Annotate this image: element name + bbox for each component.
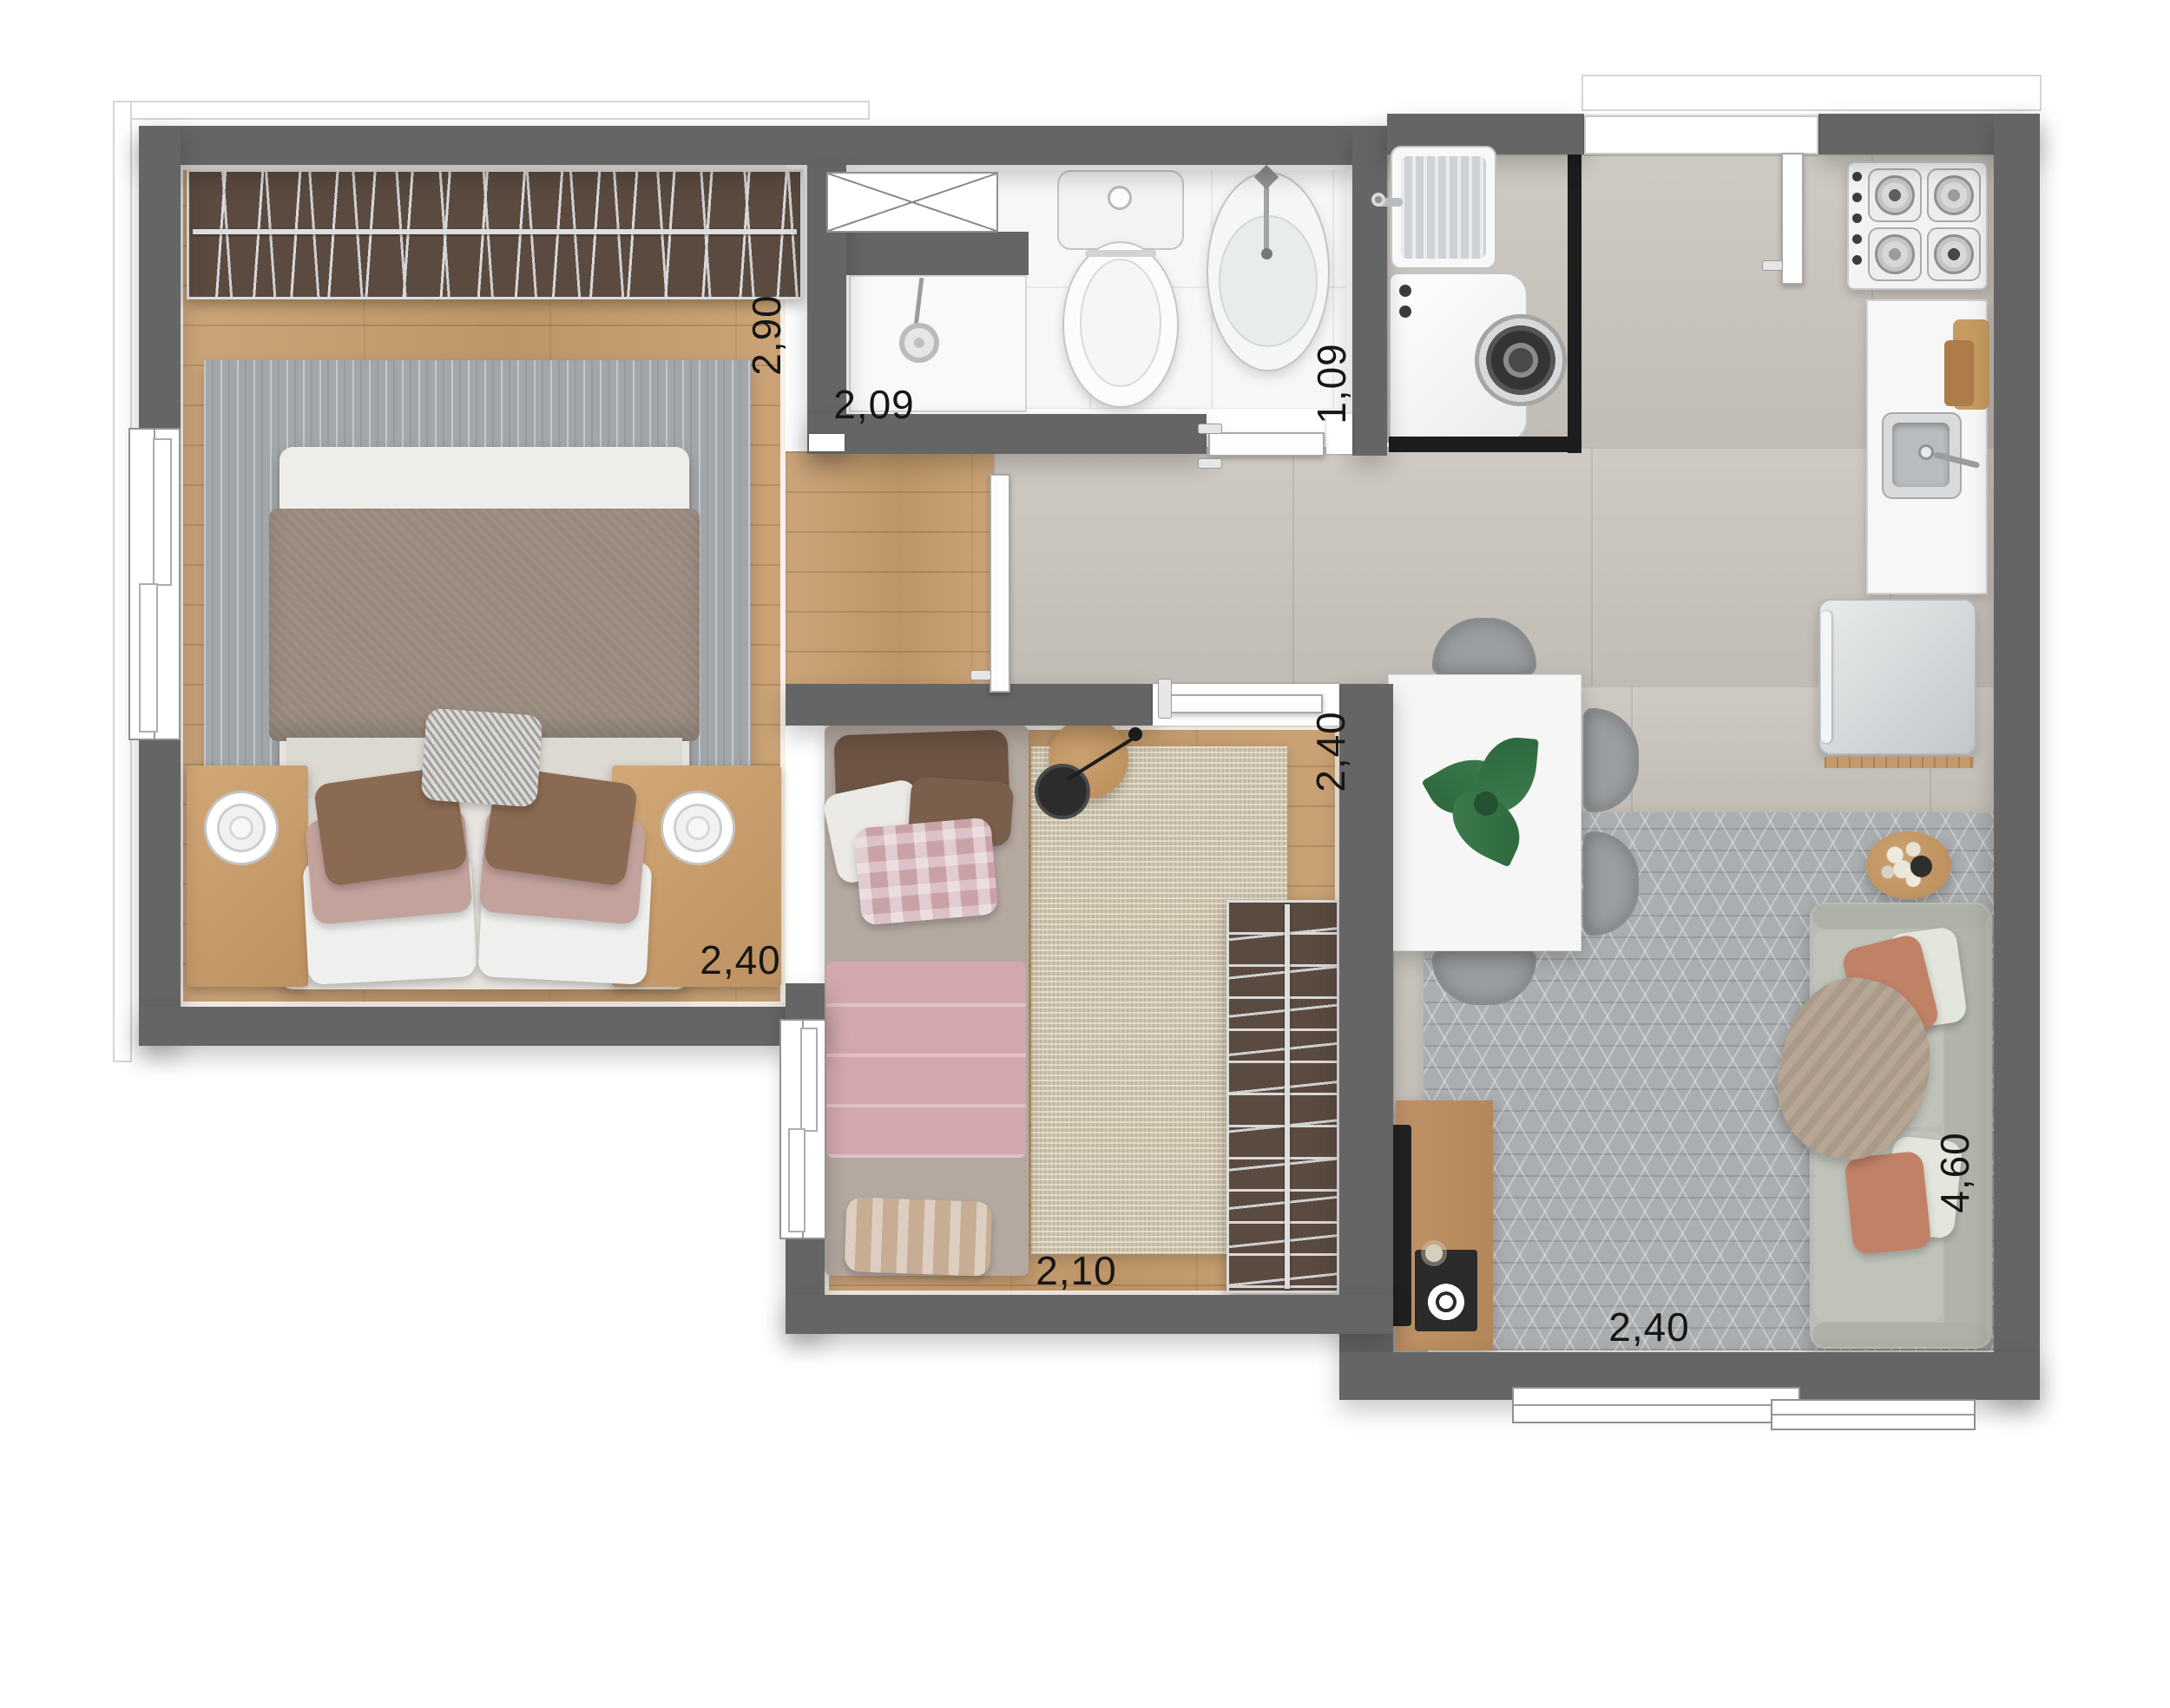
entrance-door-handle-icon — [1762, 260, 1783, 271]
laundry-divider-bottom — [1389, 437, 1581, 452]
double-bed-blanket — [269, 509, 700, 741]
bedroom1-wardrobe — [187, 169, 803, 299]
toilet-flush-button — [1108, 186, 1132, 210]
burner-1-icon — [1875, 175, 1915, 215]
cutting-board-2 — [1944, 340, 1974, 406]
pillow-accent-gray — [420, 707, 542, 807]
bedroom2-wardrobe-rod — [1285, 904, 1290, 1289]
sofa-pillow-salmon-2 — [1844, 1151, 1931, 1256]
bedroom1-window-pane-1 — [153, 438, 172, 586]
bedroom1-wardrobe-rod — [193, 229, 797, 234]
dim-bedroom1-width: 2,40 — [693, 939, 788, 981]
bathroom-door-handle-icon-2 — [1198, 458, 1222, 469]
dim-living-width: 2,40 — [1601, 1306, 1697, 1348]
laundry-tank-basin — [1401, 156, 1486, 259]
bedroom1-window-pane-2 — [139, 583, 158, 732]
floor-plan: 2,90 2,40 2,09 1,09 2,40 2,10 2,40 4,60 — [0, 0, 2170, 1708]
single-bed-pillow-bottom — [845, 1197, 993, 1277]
double-bed-sheet-top — [279, 447, 689, 515]
wall-right — [1994, 114, 2040, 1400]
stove-knob-2 — [1852, 193, 1862, 202]
fridge — [1818, 599, 1976, 755]
side-table-flowers-icon — [1873, 835, 1946, 892]
bathroom-door-handle-icon — [1198, 424, 1222, 434]
wall-bedroom2-top — [786, 684, 1153, 726]
plant-pot-icon — [1474, 792, 1498, 816]
hall-wood-floor — [786, 451, 994, 684]
living-window-1 — [1512, 1387, 1800, 1423]
dim-bedroom2-depth: 2,40 — [1310, 704, 1351, 799]
bedroom2-door-handle-icon — [1158, 679, 1172, 719]
kitchen-faucet-icon — [1918, 444, 1934, 460]
toilet-hinge — [1085, 250, 1156, 257]
laundry-faucet-cross — [1371, 193, 1385, 207]
bedroom1-door-handle-icon — [970, 670, 991, 680]
sofa-arm-bottom — [1812, 1323, 1988, 1347]
wall-bedroom1-bottom — [139, 1007, 825, 1046]
wall-bathroom-laundry — [1352, 126, 1387, 456]
stove-knob-5 — [1852, 255, 1862, 265]
washer-knob-1 — [1399, 285, 1411, 297]
toilet-seat-line — [1080, 259, 1161, 387]
wall-top — [139, 126, 1387, 165]
single-bed-pillow-plaid — [853, 817, 998, 925]
stove-knob-4 — [1852, 234, 1862, 244]
console-plant-icon — [1418, 1239, 1450, 1267]
bedroom2-window-pane-2 — [788, 1128, 806, 1232]
toilet-tank — [1057, 170, 1184, 250]
laundry-divider-vertical — [1568, 148, 1581, 453]
stove-knob-1 — [1852, 172, 1862, 181]
bathroom-wall-jamb-left — [809, 434, 845, 451]
bathroom-door — [1208, 432, 1325, 457]
entrance-threshold — [1584, 115, 1818, 154]
dining-table — [1388, 674, 1581, 951]
single-bed-blanket-pink — [826, 962, 1026, 1158]
burner-3-icon — [1875, 234, 1915, 274]
sofa-arm-top — [1812, 904, 1988, 929]
bedroom1-door — [990, 474, 1010, 693]
nightstand-lamp-left-icon — [196, 783, 286, 873]
wall-bedroom2-bottom — [786, 1295, 1393, 1334]
living-window-2 — [1771, 1399, 1976, 1430]
bedroom2-door — [1170, 694, 1323, 713]
dim-bathroom-depth: 1,09 — [1311, 336, 1352, 431]
entry-corridor-ledge — [1581, 75, 2042, 111]
entrance-door — [1781, 153, 1804, 285]
washer-knob-2 — [1399, 305, 1411, 318]
dim-living-depth: 4,60 — [1934, 1125, 1976, 1220]
burner-2-icon — [1934, 175, 1974, 215]
shower-head-icon — [899, 323, 939, 363]
fridge-shelf-strip — [1825, 757, 1974, 768]
nightstand-lamp-right-icon — [653, 783, 743, 873]
bedroom2-lamp-bulb — [1128, 727, 1142, 741]
outer-ledge-top — [113, 101, 870, 120]
burner-4-icon — [1934, 234, 1974, 274]
bedroom2-wardrobe — [1226, 900, 1339, 1293]
stove-knob-3 — [1852, 213, 1862, 223]
bathroom-faucet-stem — [1264, 181, 1269, 253]
mirror-cabinet-icon — [826, 172, 998, 233]
washing-machine-drum-icon — [1470, 310, 1571, 411]
bedroom2-window-pane-1 — [800, 1028, 818, 1132]
dim-bathroom-width: 2,09 — [826, 384, 922, 425]
bathroom-faucet-dot — [1261, 248, 1272, 259]
fridge-handle — [1821, 611, 1831, 743]
dim-bedroom2-width: 2,10 — [1029, 1250, 1124, 1291]
dim-bedroom1-depth: 2,90 — [746, 287, 787, 383]
